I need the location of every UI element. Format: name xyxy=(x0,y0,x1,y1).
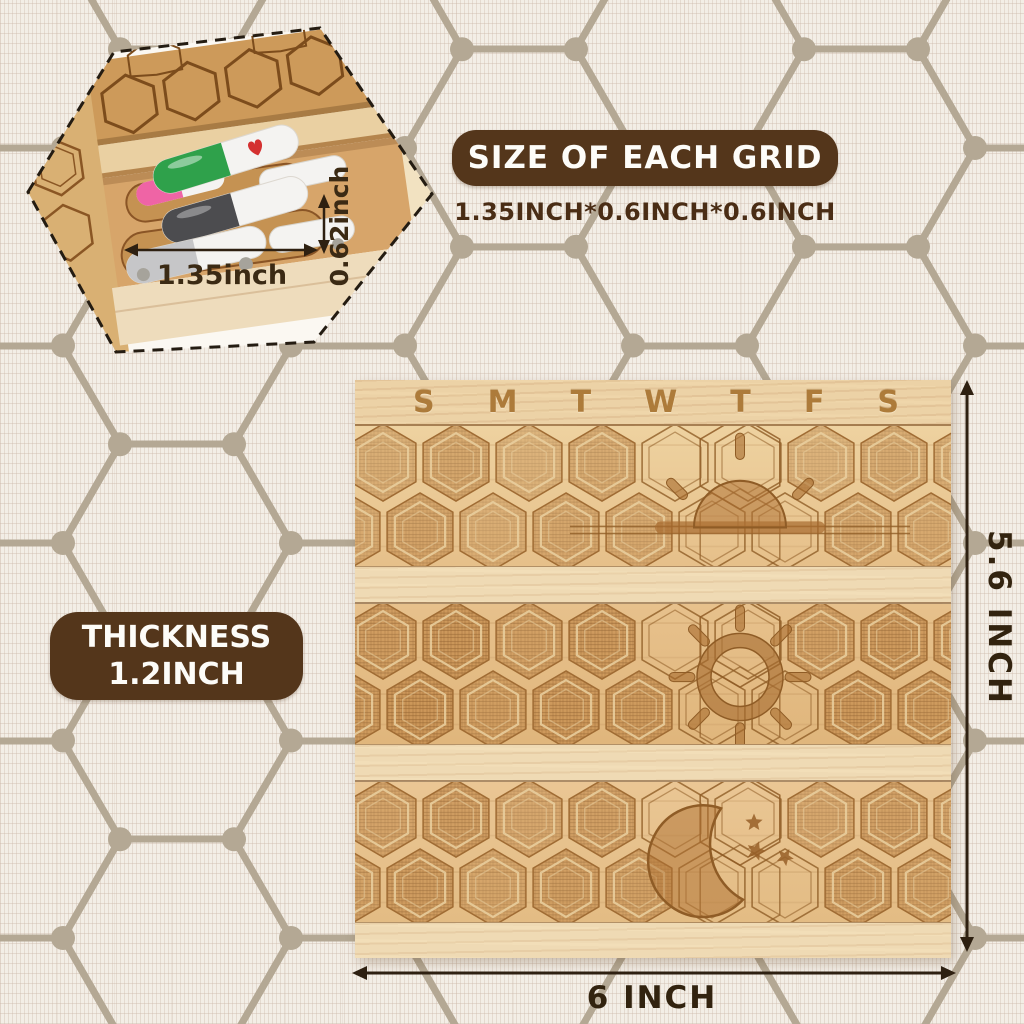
height-dimension: 5.6 INCH xyxy=(960,380,1017,952)
white-capsule-bottom xyxy=(267,214,356,255)
divider-bar xyxy=(98,102,409,177)
thickness-badge: THICKNESS 1.2INCH xyxy=(50,612,303,700)
tray-noon-front xyxy=(355,744,951,782)
thickness-line2: 1.2INCH xyxy=(108,656,245,694)
day-letter-wednesday: W xyxy=(644,385,677,420)
lid-hexagon-engraving xyxy=(94,4,409,136)
dark-gray-capsule xyxy=(158,173,312,247)
height-dimension-label: 5.6 INCH xyxy=(981,530,1017,706)
width-dimension: 6 INCH xyxy=(352,966,956,1016)
white-capsule-top xyxy=(257,153,348,195)
side-panel-hexagon-engraving xyxy=(30,136,95,263)
sunrise-icon xyxy=(355,426,951,566)
right-wall xyxy=(383,15,453,306)
tray-night xyxy=(355,782,951,922)
tray-noon xyxy=(355,604,951,744)
tray-night-front xyxy=(355,922,951,958)
inset-width-dimension: 1.35inch xyxy=(124,244,318,292)
day-letters-strip: S M T W T F S xyxy=(355,380,951,426)
moon-stars-icon xyxy=(355,782,951,922)
day-letter-thursday: T xyxy=(730,385,750,420)
sun-icon xyxy=(355,604,951,744)
tray-morning xyxy=(355,426,951,566)
inset-depth-dimension: 0.62inch xyxy=(318,166,354,287)
inset-photo-hexagon: 1.35inch 0.62inch xyxy=(8,4,453,376)
day-letter-monday: M xyxy=(488,385,518,420)
photo-background xyxy=(8,4,453,376)
magnet-dot xyxy=(238,256,254,272)
day-letter-sunday: S xyxy=(413,385,435,420)
thickness-line1: THICKNESS xyxy=(82,619,271,657)
size-badge-title: SIZE OF EACH GRID xyxy=(468,140,823,176)
heart-icon xyxy=(247,139,265,158)
pill-organizer-box: S M T W T F S xyxy=(355,380,951,958)
width-dimension-label: 6 INCH xyxy=(587,980,718,1016)
open-pill-box-photo xyxy=(8,4,453,376)
green-capsule-with-heart xyxy=(149,121,302,197)
size-badge: SIZE OF EACH GRID xyxy=(452,130,838,186)
day-letter-saturday: S xyxy=(877,385,899,420)
tray-morning-front xyxy=(355,566,951,604)
pink-capsule xyxy=(134,163,227,208)
size-caption: 1.35INCH*0.6INCH*0.6INCH xyxy=(438,198,852,226)
magnet-dot xyxy=(136,267,151,282)
compartment-floor xyxy=(103,135,425,287)
day-letter-tuesday: T xyxy=(571,385,591,420)
lid-interior-wood xyxy=(86,19,405,145)
front-wall xyxy=(112,244,433,345)
dashed-hexagon-border xyxy=(28,28,432,352)
magnet-dot xyxy=(331,237,345,251)
pill-slot-top xyxy=(124,161,308,224)
inset-depth-label: 0.62inch xyxy=(325,166,354,287)
inset-width-label: 1.35inch xyxy=(157,260,287,291)
product-infographic: 1.35inch 0.62inch SIZE OF EACH GRID 1.35… xyxy=(0,0,1024,1024)
light-gray-capsule xyxy=(123,223,269,286)
day-letter-friday: F xyxy=(804,385,825,420)
pill-slot-bottom xyxy=(119,207,328,281)
